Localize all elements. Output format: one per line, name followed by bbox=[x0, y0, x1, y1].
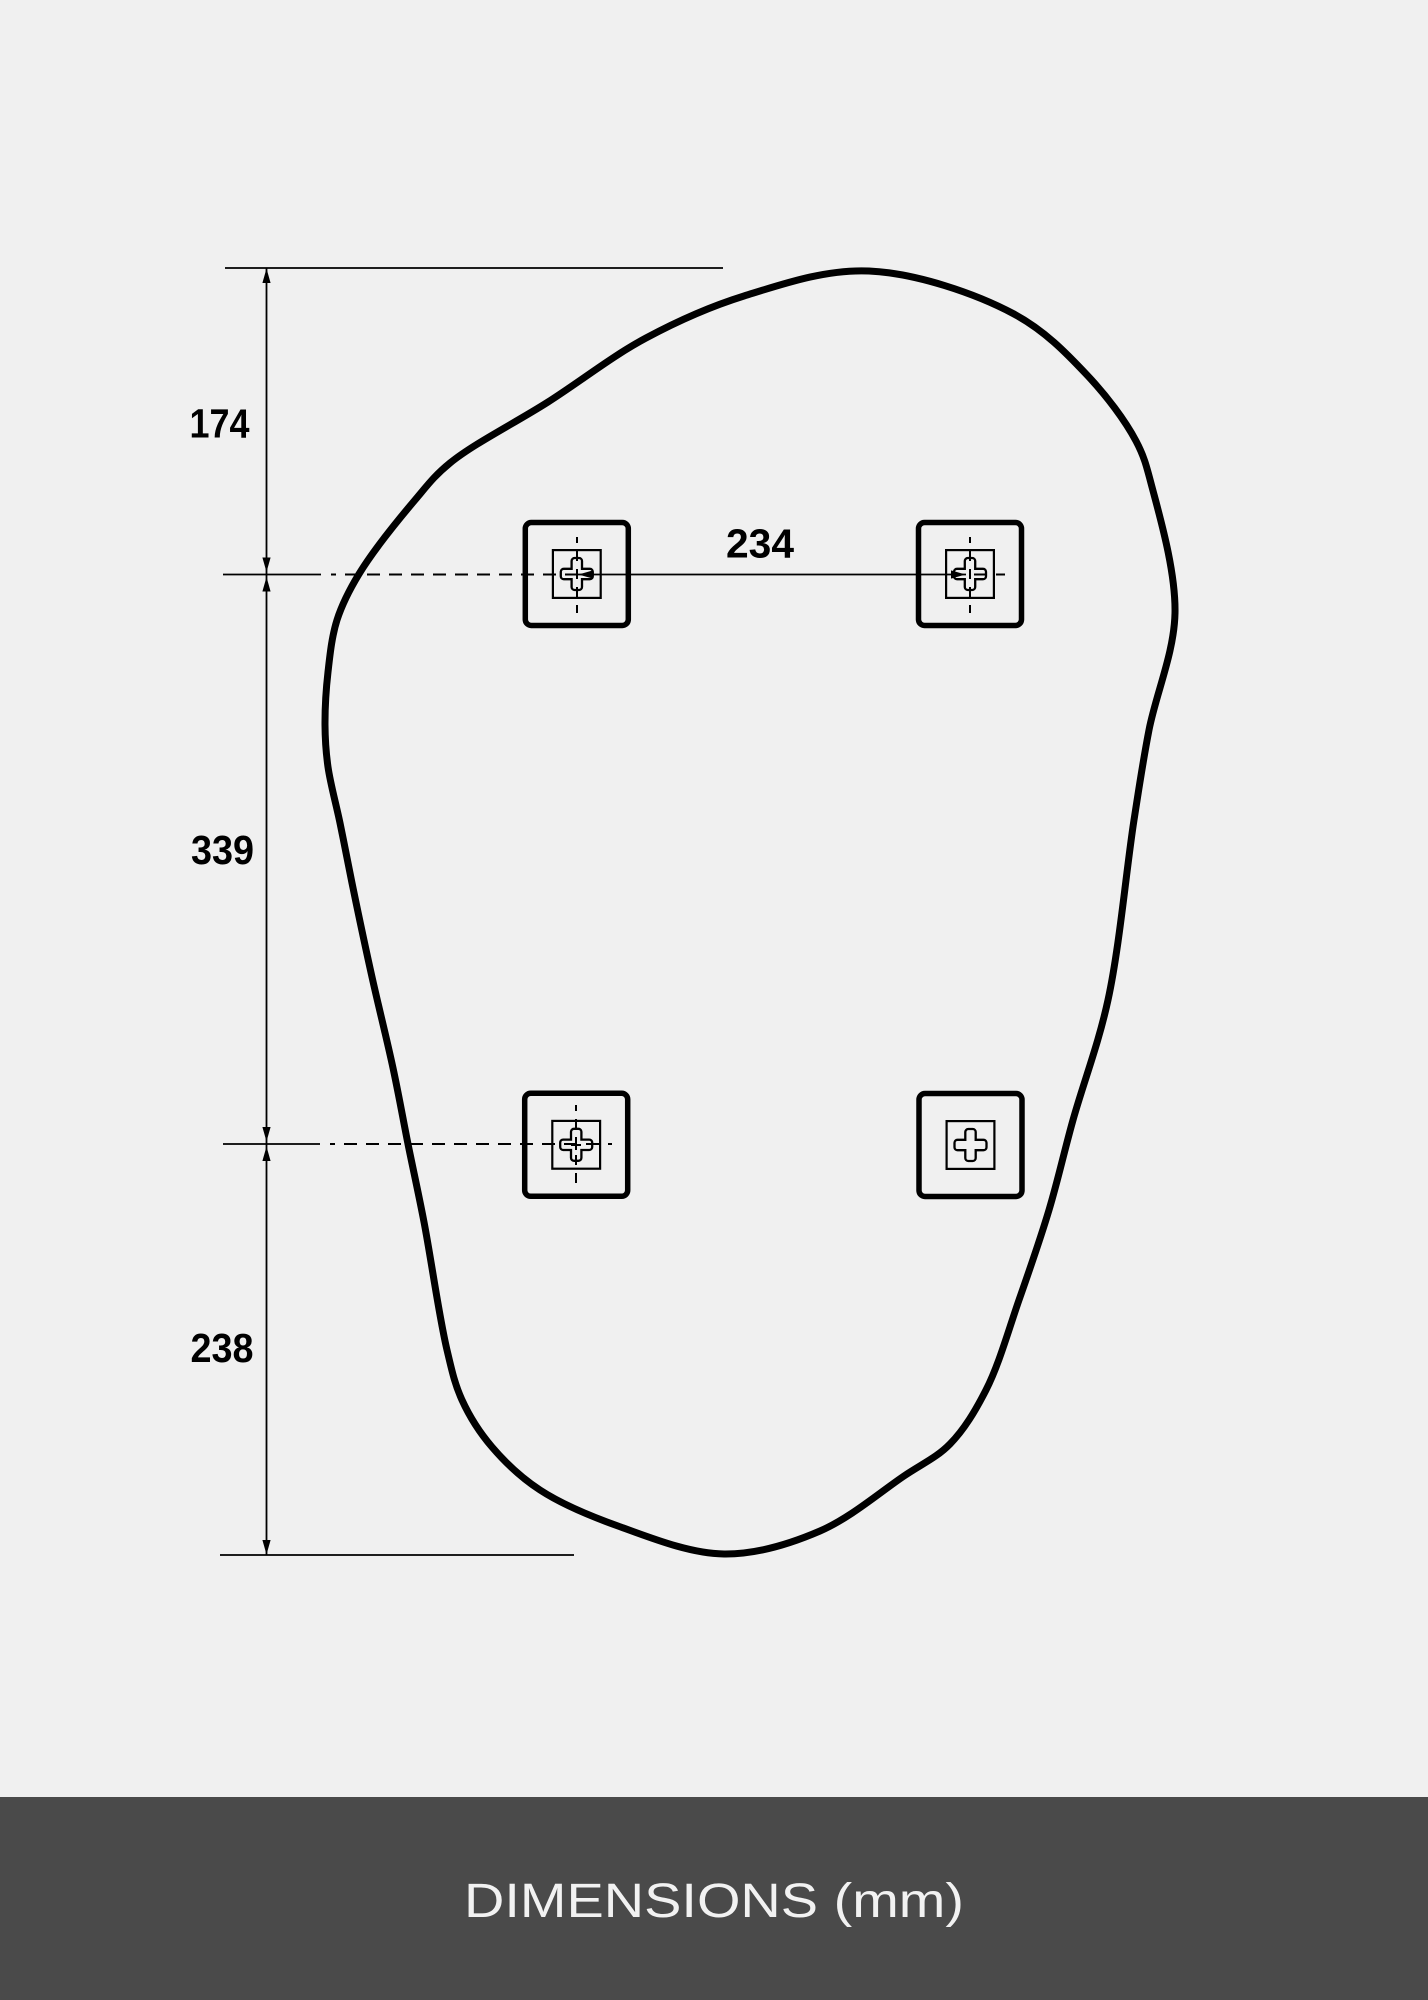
svg-text:234: 234 bbox=[726, 521, 794, 567]
svg-text:339: 339 bbox=[191, 827, 254, 873]
svg-text:174: 174 bbox=[190, 401, 250, 447]
svg-text:238: 238 bbox=[191, 1325, 254, 1371]
svg-text:DIMENSIONS (mm): DIMENSIONS (mm) bbox=[464, 1875, 964, 1928]
